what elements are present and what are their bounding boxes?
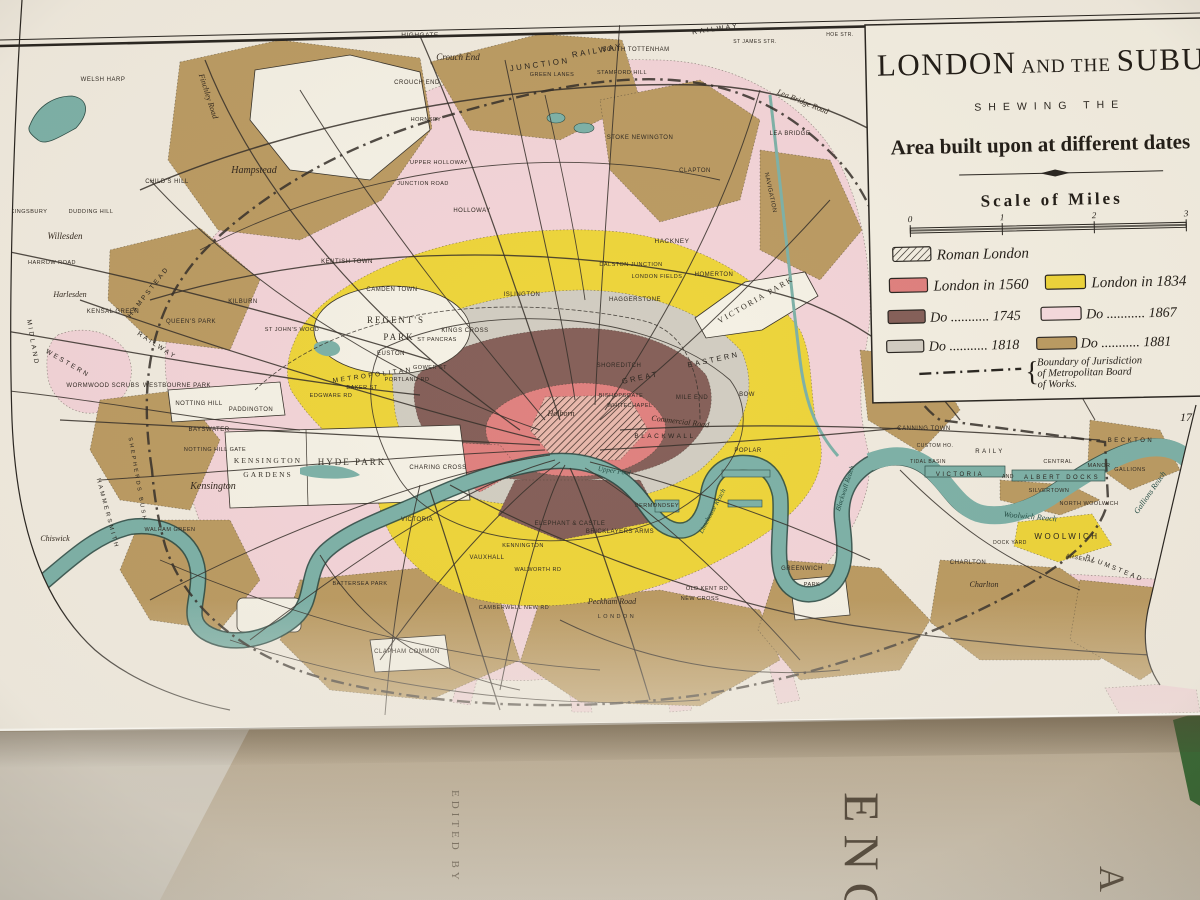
- photo-vignette: [0, 0, 1200, 900]
- book-photo: EDITED BY ENC A: [0, 0, 1200, 900]
- map-plate-svg: EDITED BY ENC A: [0, 0, 1200, 900]
